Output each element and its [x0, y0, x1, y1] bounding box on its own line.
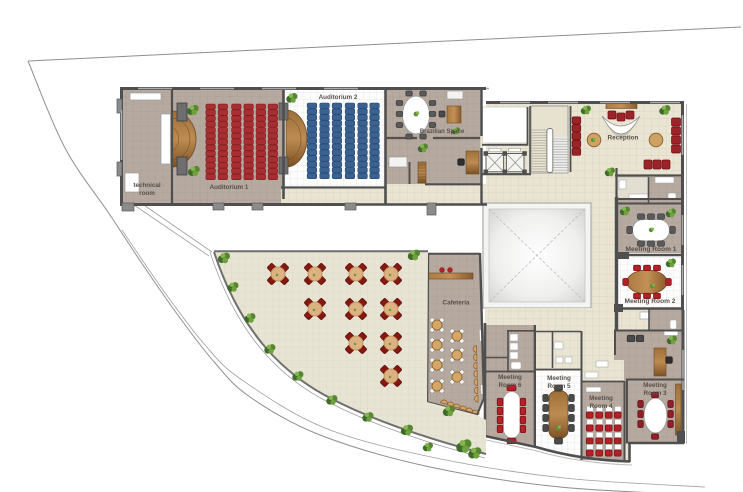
svg-text:Brazilian Space: Brazilian Space: [420, 129, 465, 135]
svg-text:technical: technical: [133, 182, 161, 189]
svg-text:Auditorium 2: Auditorium 2: [319, 94, 358, 101]
svg-text:Meeting Room 1: Meeting Room 1: [626, 246, 677, 253]
svg-text:Room 4: Room 4: [589, 403, 613, 410]
svg-text:Meeting: Meeting: [589, 395, 613, 402]
svg-text:Cafeteria: Cafeteria: [443, 300, 470, 307]
svg-text:Room 6: Room 6: [498, 382, 522, 389]
svg-text:Meeting: Meeting: [498, 374, 522, 381]
svg-text:Meeting: Meeting: [643, 382, 667, 389]
svg-text:Room 3: Room 3: [643, 390, 667, 397]
svg-text:Auditorium 1: Auditorium 1: [210, 184, 249, 191]
svg-text:Room 5: Room 5: [547, 383, 571, 390]
svg-text:Meeting Room 2: Meeting Room 2: [625, 298, 676, 305]
svg-text:Reception: Reception: [608, 135, 639, 142]
svg-text:Meeting: Meeting: [547, 375, 571, 382]
svg-text:room: room: [139, 190, 155, 197]
